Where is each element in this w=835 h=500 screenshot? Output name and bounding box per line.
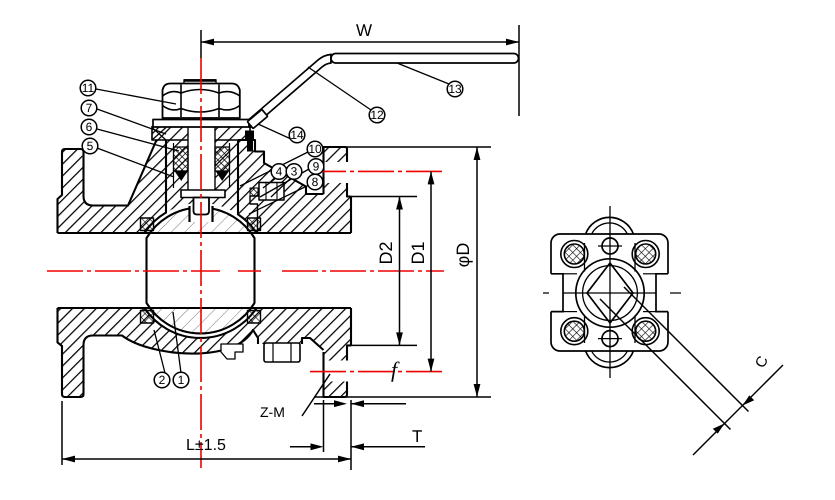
svg-text:7: 7 [86,101,93,115]
svg-text:11: 11 [82,81,95,95]
svg-text:D1: D1 [408,241,428,264]
svg-text:6: 6 [86,120,93,134]
svg-text:14: 14 [290,128,304,142]
svg-text:T: T [412,427,422,446]
svg-text:D2: D2 [376,241,396,264]
svg-text:Z-M: Z-M [260,404,285,420]
svg-text:1: 1 [178,373,185,387]
svg-text:13: 13 [448,82,462,96]
svg-text:10: 10 [308,142,322,156]
svg-text:W: W [356,21,372,40]
svg-text:9: 9 [313,160,320,174]
svg-text:φD: φD [453,243,473,268]
svg-text:5: 5 [87,139,94,153]
svg-text:3: 3 [291,165,298,179]
svg-text:2: 2 [159,373,166,387]
svg-text:L±1.5: L±1.5 [186,437,226,454]
svg-text:4: 4 [276,165,283,179]
svg-text:12: 12 [370,108,384,122]
svg-text:8: 8 [312,175,319,189]
